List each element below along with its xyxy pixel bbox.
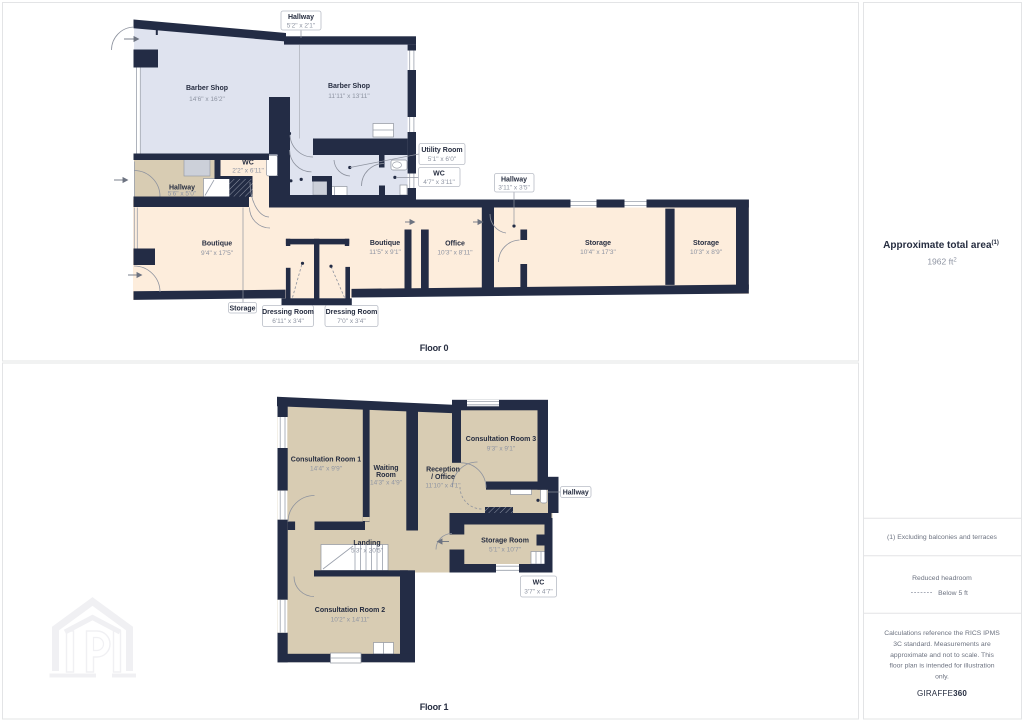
svg-text:Office: Office xyxy=(445,241,465,248)
svg-text:Floor 1: Floor 1 xyxy=(420,702,449,712)
svg-text:3'7" x 4'7": 3'7" x 4'7" xyxy=(524,589,553,596)
svg-text:14'3" x 4'9": 14'3" x 4'9" xyxy=(370,480,403,487)
svg-text:11'5" x 9'1": 11'5" x 9'1" xyxy=(369,249,401,256)
svg-text:9'3" x 9'1": 9'3" x 9'1" xyxy=(487,446,516,453)
svg-text:floor plan is intended for ill: floor plan is intended for illustration xyxy=(889,663,994,670)
svg-text:Waiting: Waiting xyxy=(373,465,398,472)
svg-text:Storage Room: Storage Room xyxy=(481,538,529,545)
svg-text:5'3" x 20'5": 5'3" x 20'5" xyxy=(351,548,384,555)
svg-text:Floor 0: Floor 0 xyxy=(420,343,449,353)
svg-text:2'2" x 6'11": 2'2" x 6'11" xyxy=(232,168,264,175)
svg-text:WC: WC xyxy=(533,580,545,587)
svg-text:5'1" x 6'0": 5'1" x 6'0" xyxy=(428,156,457,163)
svg-text:Reception: Reception xyxy=(426,467,460,474)
svg-text:Dressing Room: Dressing Room xyxy=(262,309,314,316)
svg-text:6'11" x 3'4": 6'11" x 3'4" xyxy=(272,318,304,325)
svg-text:10'4" x 17'3": 10'4" x 17'3" xyxy=(580,249,616,256)
svg-text:Hallway: Hallway xyxy=(563,490,589,497)
svg-text:3C standard. Measurements are: 3C standard. Measurements are xyxy=(893,641,991,648)
svg-text:11'11" x 13'11": 11'11" x 13'11" xyxy=(328,93,370,100)
svg-text:5'6" x 5'0": 5'6" x 5'0" xyxy=(168,191,197,198)
svg-text:Dressing Room: Dressing Room xyxy=(326,309,378,316)
svg-text:9'4" x 17'5": 9'4" x 17'5" xyxy=(201,250,234,257)
svg-text:10'2" x 14'11": 10'2" x 14'11" xyxy=(331,617,370,624)
svg-text:Hallway: Hallway xyxy=(501,177,527,184)
svg-text:Boutique: Boutique xyxy=(370,240,400,247)
svg-text:Landing: Landing xyxy=(353,540,380,547)
svg-text:WC: WC xyxy=(242,160,254,167)
svg-text:10'3" x 8'9": 10'3" x 8'9" xyxy=(690,249,723,256)
svg-text:1962 ft2: 1962 ft2 xyxy=(927,257,957,267)
svg-text:(1) Excluding balconies and te: (1) Excluding balconies and terraces xyxy=(887,534,998,541)
svg-text:10'3" x 8'11": 10'3" x 8'11" xyxy=(437,250,473,257)
svg-text:approximate and not to scale.: approximate and not to scale. This xyxy=(890,652,994,659)
svg-text:Utility Room: Utility Room xyxy=(421,147,462,154)
svg-text:Consultation Room 1: Consultation Room 1 xyxy=(291,457,361,464)
svg-text:Boutique: Boutique xyxy=(202,241,232,248)
svg-text:5'2" x 2'1": 5'2" x 2'1" xyxy=(287,23,316,30)
svg-text:Below 5 ft: Below 5 ft xyxy=(938,590,968,597)
svg-text:Barber Shop: Barber Shop xyxy=(328,83,370,90)
svg-text:Storage: Storage xyxy=(229,306,255,313)
svg-text:4'7" x 3'11": 4'7" x 3'11" xyxy=(423,179,455,186)
svg-text:Storage: Storage xyxy=(585,240,611,247)
svg-text:Reduced headroom: Reduced headroom xyxy=(912,575,972,582)
svg-text:Room: Room xyxy=(376,472,396,479)
svg-text:14'6" x 16'2": 14'6" x 16'2" xyxy=(189,96,225,103)
svg-text:Approximate total area(1): Approximate total area(1) xyxy=(883,240,999,251)
svg-text:11'10" x 4'1": 11'10" x 4'1" xyxy=(425,483,461,490)
svg-text:Storage: Storage xyxy=(693,240,719,247)
svg-text:Calculations reference the RIC: Calculations reference the RICS IPMS xyxy=(884,630,1000,637)
svg-text:Barber Shop: Barber Shop xyxy=(186,85,228,92)
svg-text:GIRAFFE360: GIRAFFE360 xyxy=(917,689,967,698)
svg-text:Consultation Room 2: Consultation Room 2 xyxy=(315,607,385,614)
svg-text:Consultation Room 3: Consultation Room 3 xyxy=(466,436,536,443)
svg-text:WC: WC xyxy=(433,171,445,178)
svg-text:only.: only. xyxy=(935,674,949,681)
svg-text:14'4" x 9'9": 14'4" x 9'9" xyxy=(310,466,343,473)
svg-text:/ Office: / Office xyxy=(431,474,455,481)
svg-text:Hallway: Hallway xyxy=(288,14,314,21)
svg-text:5'1" x 10'7": 5'1" x 10'7" xyxy=(489,547,522,554)
svg-text:7'0" x 3'4": 7'0" x 3'4" xyxy=(337,318,366,325)
svg-text:3'11" x 3'5": 3'11" x 3'5" xyxy=(498,185,530,192)
